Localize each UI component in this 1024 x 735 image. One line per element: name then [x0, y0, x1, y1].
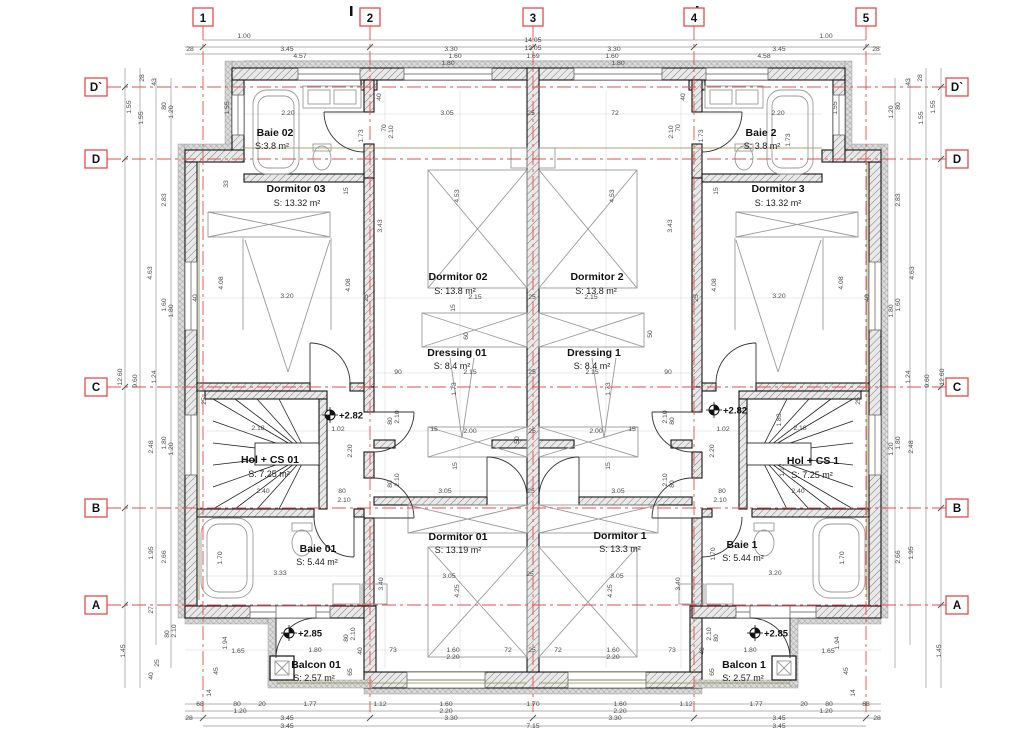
- dim-label: 80: [387, 417, 394, 425]
- elevation-marker-icon: [284, 633, 289, 638]
- dim-label: 25: [528, 647, 536, 654]
- dim-label: 15: [605, 462, 612, 470]
- dim-label: 73: [668, 647, 676, 654]
- elevation-marker-icon: [709, 410, 714, 415]
- dim-label: 80: [233, 701, 241, 708]
- dim-label: 80: [895, 102, 902, 110]
- sink-counter-baie2: [705, 86, 763, 108]
- closet-dormitor03: [208, 212, 330, 237]
- dim-label: 1.55: [832, 101, 839, 114]
- dim-label: 25: [528, 294, 536, 301]
- dim-label: 27: [148, 606, 155, 614]
- room-area-label: S: 13.8 m²: [575, 286, 617, 296]
- dim-label: 25: [527, 488, 535, 495]
- elevation-label: +2.85: [764, 629, 789, 640]
- dim-label: 50: [514, 436, 521, 444]
- grid-row-label-left: C: [92, 382, 100, 394]
- dim-label: 2.20: [439, 708, 452, 715]
- bed-dormitor3: [735, 238, 823, 372]
- dim-label: 60: [463, 332, 470, 340]
- dim-label: 1.55: [138, 111, 145, 124]
- dim-label: 1.65: [821, 648, 834, 655]
- dim-label: 1.24: [905, 370, 912, 383]
- dim-label: 2.20: [606, 654, 619, 661]
- dim-label: 3.05: [440, 110, 453, 117]
- dim-label: 25: [201, 397, 208, 405]
- closet-dressing1-top: [539, 313, 644, 347]
- grid-row-label-left: A: [92, 600, 100, 612]
- dim-label: 4.63: [909, 266, 916, 279]
- dim-label: 15: [713, 187, 720, 195]
- sink-counter-baie02: [303, 86, 361, 108]
- dim-label: 1.73: [785, 133, 792, 146]
- dim-label: 2.48: [908, 440, 915, 453]
- dim-label: 1.94: [222, 636, 229, 649]
- dim-label: 9.60: [924, 374, 931, 387]
- elevation-label: +2.85: [298, 629, 323, 640]
- dim-label: 1.73: [605, 382, 612, 395]
- elevation-marker-icon: [714, 405, 719, 410]
- room-label: Baie 2: [746, 127, 777, 139]
- dim-label: 80: [825, 701, 833, 708]
- dim-label: 2.10: [662, 410, 669, 423]
- dim-label: 3.30: [444, 46, 457, 53]
- dim-label: 80: [669, 417, 676, 425]
- dresser-dormitor01: [408, 505, 527, 533]
- dim-label: 70: [381, 124, 388, 132]
- dim-label: 2.40: [791, 488, 804, 495]
- dim-label: 2.10: [394, 410, 401, 423]
- dim-label: 25: [526, 571, 534, 578]
- grid-row-label-left: D: [92, 154, 100, 166]
- dim-label: 3.20: [772, 293, 785, 300]
- dim-label: 3.33: [273, 570, 286, 577]
- elevation-marker-icon: [330, 410, 335, 415]
- room-area-label: S: 13.32 m²: [755, 198, 802, 208]
- dim-label: 15: [343, 187, 350, 195]
- room-area-label: S: 3.8 m²: [744, 141, 781, 151]
- dim-label: 1.80: [308, 647, 321, 654]
- dim-label: 45: [213, 667, 220, 675]
- dim-label: 3.45: [280, 46, 293, 53]
- dim-label: 2.10: [706, 627, 713, 640]
- room-area-label: S: 13.3 m²: [599, 544, 641, 554]
- window-stair-right: [869, 415, 881, 475]
- room-label: Baie 02: [257, 127, 294, 139]
- dim-label: 1.02: [331, 426, 344, 433]
- dim-label: 40: [680, 93, 687, 101]
- room-area-label: S: 13.19 m²: [435, 545, 482, 555]
- dim-label: 2.00: [463, 428, 476, 435]
- dim-label: 1.55: [930, 100, 937, 113]
- dim-label: 45: [843, 667, 850, 675]
- elevation-label: +2.82: [723, 406, 747, 417]
- dim-label: 2.10: [668, 125, 675, 138]
- dim-label: 1.60: [161, 298, 168, 311]
- dim-label: 14.05: [524, 37, 541, 44]
- room-label: Balcon 01: [291, 659, 341, 671]
- door-dormitor03: [310, 343, 350, 383]
- pillar-balcon1: [772, 656, 796, 680]
- dim-label: 3.45: [280, 723, 293, 730]
- dim-label: 1.83: [776, 413, 783, 426]
- room-area-label: S: 13.8 m²: [434, 286, 476, 296]
- dim-label: 40: [864, 294, 871, 302]
- dim-label: 14: [850, 689, 857, 697]
- window-baie2: [706, 68, 768, 80]
- grid-col-label: 4: [691, 13, 698, 25]
- dim-label: 1.45: [120, 644, 127, 657]
- dim-label: 12.60: [939, 368, 946, 385]
- dim-label: 3.05: [610, 573, 623, 580]
- dim-label: 4.53: [454, 189, 461, 202]
- dim-label: 2.66: [895, 550, 902, 563]
- sink-baie1: [679, 584, 733, 604]
- dim-label: 25: [154, 659, 161, 667]
- room-label: Baie 1: [727, 539, 758, 551]
- door-gap-balcon01: [276, 606, 316, 618]
- grid-row-label-right: D: [953, 154, 961, 166]
- dim-label: 80: [669, 480, 676, 488]
- room-area-label: S: 5.44 m²: [722, 553, 764, 563]
- dim-label: 1.69: [526, 53, 539, 60]
- elevation-label: +2.82: [339, 411, 363, 422]
- dim-label: 70: [675, 124, 682, 132]
- elevation-marker-icon: [289, 628, 294, 633]
- dim-label: 1.17: [779, 463, 786, 476]
- dim-label: 3.20: [280, 293, 293, 300]
- room-area-label: S: 7.25 m²: [248, 469, 290, 479]
- dim-label: 2.18: [793, 425, 806, 432]
- dim-label: 3.45: [772, 46, 785, 53]
- window-top-left: [404, 68, 492, 80]
- dim-label: 2.20: [709, 444, 716, 457]
- dim-label: 7.15: [526, 723, 539, 730]
- dim-label: 1.20: [888, 442, 895, 455]
- dim-label: 25: [528, 369, 536, 376]
- door-dormitor3: [716, 343, 756, 383]
- dim-label: 2.10: [337, 497, 350, 504]
- dim-label: 1.73: [451, 382, 458, 395]
- window-dormitor1: [568, 672, 646, 688]
- room-label: Baie 01: [300, 543, 337, 555]
- grid-row-label-right: A: [953, 600, 961, 612]
- dim-label: 3.45: [772, 723, 785, 730]
- dim-label: 3.30: [444, 715, 457, 722]
- closet-dressing01-top: [422, 313, 527, 347]
- dim-label: 28: [185, 715, 193, 722]
- dim-label: 2.20: [446, 654, 459, 661]
- dim-label: 40: [192, 294, 199, 302]
- room-area-label: S: 8.4 m²: [434, 361, 471, 371]
- grid-col-label: 1: [200, 13, 207, 25]
- room-area-label: S: 8.4 m²: [574, 361, 611, 371]
- dim-label: 1.77: [303, 701, 316, 708]
- dim-label: 2.10: [171, 624, 178, 637]
- room-label: Dormitor 03: [267, 183, 326, 195]
- dim-label: 20: [800, 701, 808, 708]
- dim-label: 1.80: [611, 60, 624, 67]
- room-label: Dressing 01: [427, 347, 487, 359]
- room-area-label: S: 2.57 m²: [293, 673, 335, 683]
- dim-label: 15: [452, 462, 459, 470]
- dim-label: 1.45: [936, 644, 943, 657]
- dim-label: 90: [664, 369, 672, 376]
- dim-label: 3.45: [772, 715, 785, 722]
- dim-label: 1.60: [439, 701, 452, 708]
- dim-label: 12.05: [524, 45, 541, 52]
- dim-label: 1.55: [224, 101, 231, 114]
- dim-label: 25: [527, 110, 535, 117]
- dim-label: 80: [387, 480, 394, 488]
- dim-label: 4.08: [218, 276, 225, 289]
- dim-label: 43: [905, 78, 912, 86]
- dim-label: 2.66: [161, 550, 168, 563]
- dim-label: 68: [862, 701, 870, 708]
- dim-label: 3.43: [377, 219, 384, 232]
- dim-label: 2.83: [161, 193, 168, 206]
- dim-label: 25: [528, 428, 536, 435]
- dim-label: 1.00: [819, 33, 832, 40]
- dim-label: 15: [430, 426, 438, 433]
- room-area-label: S: 7.25 m²: [791, 470, 833, 480]
- dim-label: 1.60: [605, 53, 618, 60]
- dim-label: 14: [206, 689, 213, 697]
- bed-dormitor1: [539, 547, 637, 657]
- floor-plan-drawing: 12345D`D`DDCCBBAA14.0512.051.001.00283.4…: [0, 0, 1024, 735]
- dim-label: 90: [394, 369, 402, 376]
- dim-label: 2.10: [350, 627, 357, 640]
- elevation-marker-icon: [750, 633, 755, 638]
- window-top-right: [574, 68, 662, 80]
- dim-label: 1.60: [613, 701, 626, 708]
- bed-dormitor02: [428, 148, 527, 288]
- room-label: Dormitor 3: [751, 183, 804, 195]
- door-baie1: [702, 517, 742, 557]
- dim-label: 28: [872, 46, 880, 53]
- dim-label: 2.18: [251, 425, 264, 432]
- room-label: Hol + CS 1: [787, 455, 839, 467]
- dim-label: 2.10: [394, 473, 401, 486]
- dim-label: 40: [148, 672, 155, 680]
- bathtub-baie01: [201, 518, 253, 598]
- grid-col-label: 2: [367, 13, 373, 25]
- dim-label: 1.02: [716, 426, 729, 433]
- dim-label: 1.73: [358, 129, 365, 142]
- dim-label: 72: [611, 110, 619, 117]
- bed-dormitor03: [243, 238, 331, 372]
- dim-label: 2.20: [281, 110, 294, 117]
- dim-label: 1.12: [679, 701, 692, 708]
- dim-label: 2.10: [388, 125, 395, 138]
- dim-label: 3.05: [611, 488, 624, 495]
- dim-label: 4.08: [711, 278, 718, 291]
- dim-label: 4.53: [609, 189, 616, 202]
- dim-label: 1.80: [888, 304, 895, 317]
- dim-label: 1.60: [606, 647, 619, 654]
- dim-label: 25: [855, 397, 862, 405]
- dim-label: 1.12: [373, 701, 386, 708]
- room-label: Balcon 1: [722, 659, 766, 671]
- dim-label: 4.57: [293, 53, 306, 60]
- grid-row-label-right: C: [953, 382, 961, 394]
- dim-label: 3.20: [768, 570, 781, 577]
- dim-label: 1.55: [126, 100, 133, 113]
- dresser-dormitor1: [539, 505, 658, 533]
- dim-label: 1.24: [151, 370, 158, 383]
- dim-label: 4.08: [838, 276, 845, 289]
- grid-col-label: 5: [863, 13, 870, 25]
- room-label: Dormitor 2: [570, 271, 623, 283]
- dim-label: 2.20: [347, 444, 354, 457]
- dim-label: 50: [647, 330, 654, 338]
- dim-label: 1.20: [888, 105, 895, 118]
- dim-label: 80: [718, 488, 726, 495]
- dim-label: 12.60: [117, 368, 124, 385]
- bed-dormitor01: [428, 547, 527, 657]
- dim-label: 1.20: [168, 105, 175, 118]
- room-label: Dormitor 01: [429, 531, 488, 543]
- dim-label: 20: [258, 701, 266, 708]
- dim-label: 28: [186, 46, 194, 53]
- grid-row-label-left: B: [92, 503, 100, 515]
- floor-plan-page: 12345D`D`DDCCBBAA14.0512.051.001.00283.4…: [0, 0, 1024, 735]
- dim-label: 3.30: [607, 46, 620, 53]
- dim-label: 2.10: [713, 497, 726, 504]
- room-area-label: S: 2.57 m²: [722, 673, 764, 683]
- dim-label: 40: [376, 93, 383, 101]
- dim-label: 72: [554, 647, 562, 654]
- room-label: Dressing 1: [567, 347, 621, 359]
- grid-row-label-right: B: [953, 503, 961, 515]
- window-upper-left-wall: [232, 95, 244, 135]
- dim-label: 1.70: [710, 547, 717, 560]
- dim-label: 1.20: [168, 442, 175, 455]
- dim-label: 33: [223, 180, 230, 188]
- dim-label: 3.05: [442, 573, 455, 580]
- room-label: Dormitor 02: [429, 271, 488, 283]
- dim-label: 2.20: [771, 110, 784, 117]
- dim-label: 3.43: [667, 219, 674, 232]
- dim-label: 80: [338, 488, 346, 495]
- dim-label: 2.48: [148, 440, 155, 453]
- dim-label: 1.00: [237, 33, 250, 40]
- dim-label: 25: [363, 294, 370, 302]
- dim-label: 1.60: [895, 298, 902, 311]
- dim-label: 43: [151, 78, 158, 86]
- dim-label: 1.77: [749, 701, 762, 708]
- dim-label: 80: [161, 102, 168, 110]
- closet-dormitor3: [736, 212, 858, 237]
- room-area-label: S: 5.44 m²: [296, 557, 338, 567]
- door-gap-balcon1: [750, 606, 790, 618]
- dim-label: 1.80: [895, 436, 902, 449]
- dim-label: 2.83: [895, 193, 902, 206]
- dim-label: 1.80: [168, 304, 175, 317]
- dim-label: 1.20: [233, 708, 246, 715]
- dim-label: 1.65: [231, 648, 244, 655]
- dim-label: 28: [917, 74, 924, 82]
- dim-label: 2.10: [662, 473, 669, 486]
- dim-label: 1.60: [446, 647, 459, 654]
- window-stair-left: [185, 415, 197, 475]
- dim-label: 4.08: [345, 278, 352, 291]
- dim-label: 1.80: [441, 60, 454, 67]
- dim-label: 28: [139, 74, 146, 82]
- room-area-label: S:3.8 m²: [255, 141, 289, 151]
- dim-label: 1.55: [918, 111, 925, 124]
- dim-label: 1.80: [161, 436, 168, 449]
- dim-label: 4.58: [757, 53, 770, 60]
- dim-label: 80: [164, 630, 171, 638]
- room-label: Dormitor 1: [593, 530, 646, 542]
- dim-label: 2.00: [589, 428, 602, 435]
- dim-label: 1.20: [819, 708, 832, 715]
- dim-label: 1.70: [839, 551, 846, 564]
- room-area-label: S: 13.32 m²: [274, 198, 321, 208]
- elevation-marker-icon: [755, 628, 760, 633]
- dim-label: 68: [196, 701, 204, 708]
- dim-label: 4.25: [607, 584, 614, 597]
- dim-label: 9.60: [132, 374, 139, 387]
- bed-dormitor2: [539, 148, 637, 288]
- dim-label: 28: [873, 715, 881, 722]
- dim-label: 1.95: [908, 546, 915, 559]
- dim-label: 3.45: [280, 715, 293, 722]
- dim-label: 1.80: [743, 647, 756, 654]
- dim-label: 72: [504, 647, 512, 654]
- grid-row-label-right: D`: [951, 82, 963, 94]
- dim-label: 65: [709, 668, 716, 676]
- dim-label: 40: [357, 647, 364, 655]
- dim-label: 3.30: [608, 715, 621, 722]
- dim-label: 2.40: [256, 488, 269, 495]
- dim-label: 15: [628, 426, 636, 433]
- dim-label: 80: [343, 634, 350, 642]
- dim-label: 3.40: [675, 577, 682, 590]
- dim-label: 3.05: [438, 488, 451, 495]
- dim-label: 3.40: [378, 577, 385, 590]
- dim-label: 65: [347, 668, 354, 676]
- dim-label: 80: [713, 634, 720, 642]
- grid-row-label-left: D`: [90, 82, 102, 94]
- dim-label: 1.94: [834, 636, 841, 649]
- dim-label: 4.25: [454, 584, 461, 597]
- room-label: Hol + CS 01: [241, 454, 299, 466]
- dim-label: 40: [699, 647, 706, 655]
- dim-label: 25: [693, 294, 700, 302]
- dim-label: 1.70: [526, 701, 539, 708]
- dim-label: 1.73: [698, 129, 705, 142]
- dim-label: 73: [389, 647, 397, 654]
- dim-label: 1.60: [448, 53, 461, 60]
- dim-label: 2.20: [613, 708, 626, 715]
- dim-label: 1.70: [217, 551, 224, 564]
- grid-col-label: 3: [530, 13, 536, 25]
- door-baie2: [702, 112, 742, 152]
- dim-label: 4.63: [147, 266, 154, 279]
- dim-label: 15: [450, 304, 457, 312]
- window-dormitor01: [407, 672, 485, 688]
- dim-label: 1.95: [148, 546, 155, 559]
- window-baie02: [298, 68, 360, 80]
